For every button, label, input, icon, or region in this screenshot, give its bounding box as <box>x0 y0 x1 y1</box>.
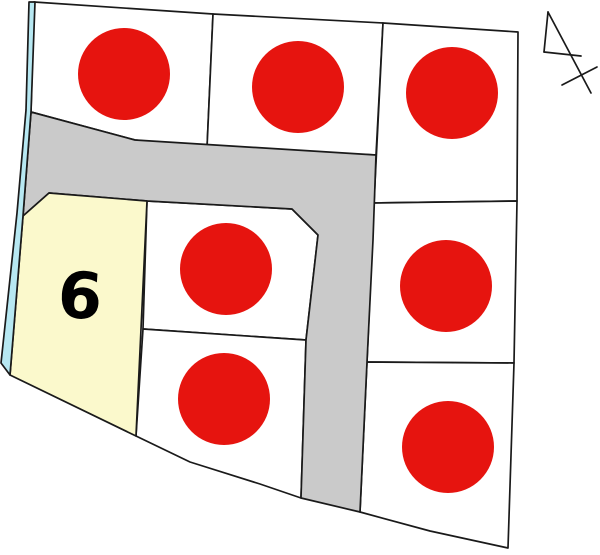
site-map: 済済済済済済済 6 <box>0 0 600 555</box>
sold-stamp: 済 <box>78 28 170 120</box>
sold-stamp: 済 <box>402 401 494 493</box>
lot-number: 6 <box>37 255 122 338</box>
sold-stamp: 済 <box>180 223 272 315</box>
sold-stamp: 済 <box>406 47 498 139</box>
sold-stamp: 済 <box>252 41 344 133</box>
sold-stamp: 済 <box>400 240 492 332</box>
north-arrow-icon <box>544 12 597 93</box>
sold-stamp: 済 <box>178 353 270 445</box>
